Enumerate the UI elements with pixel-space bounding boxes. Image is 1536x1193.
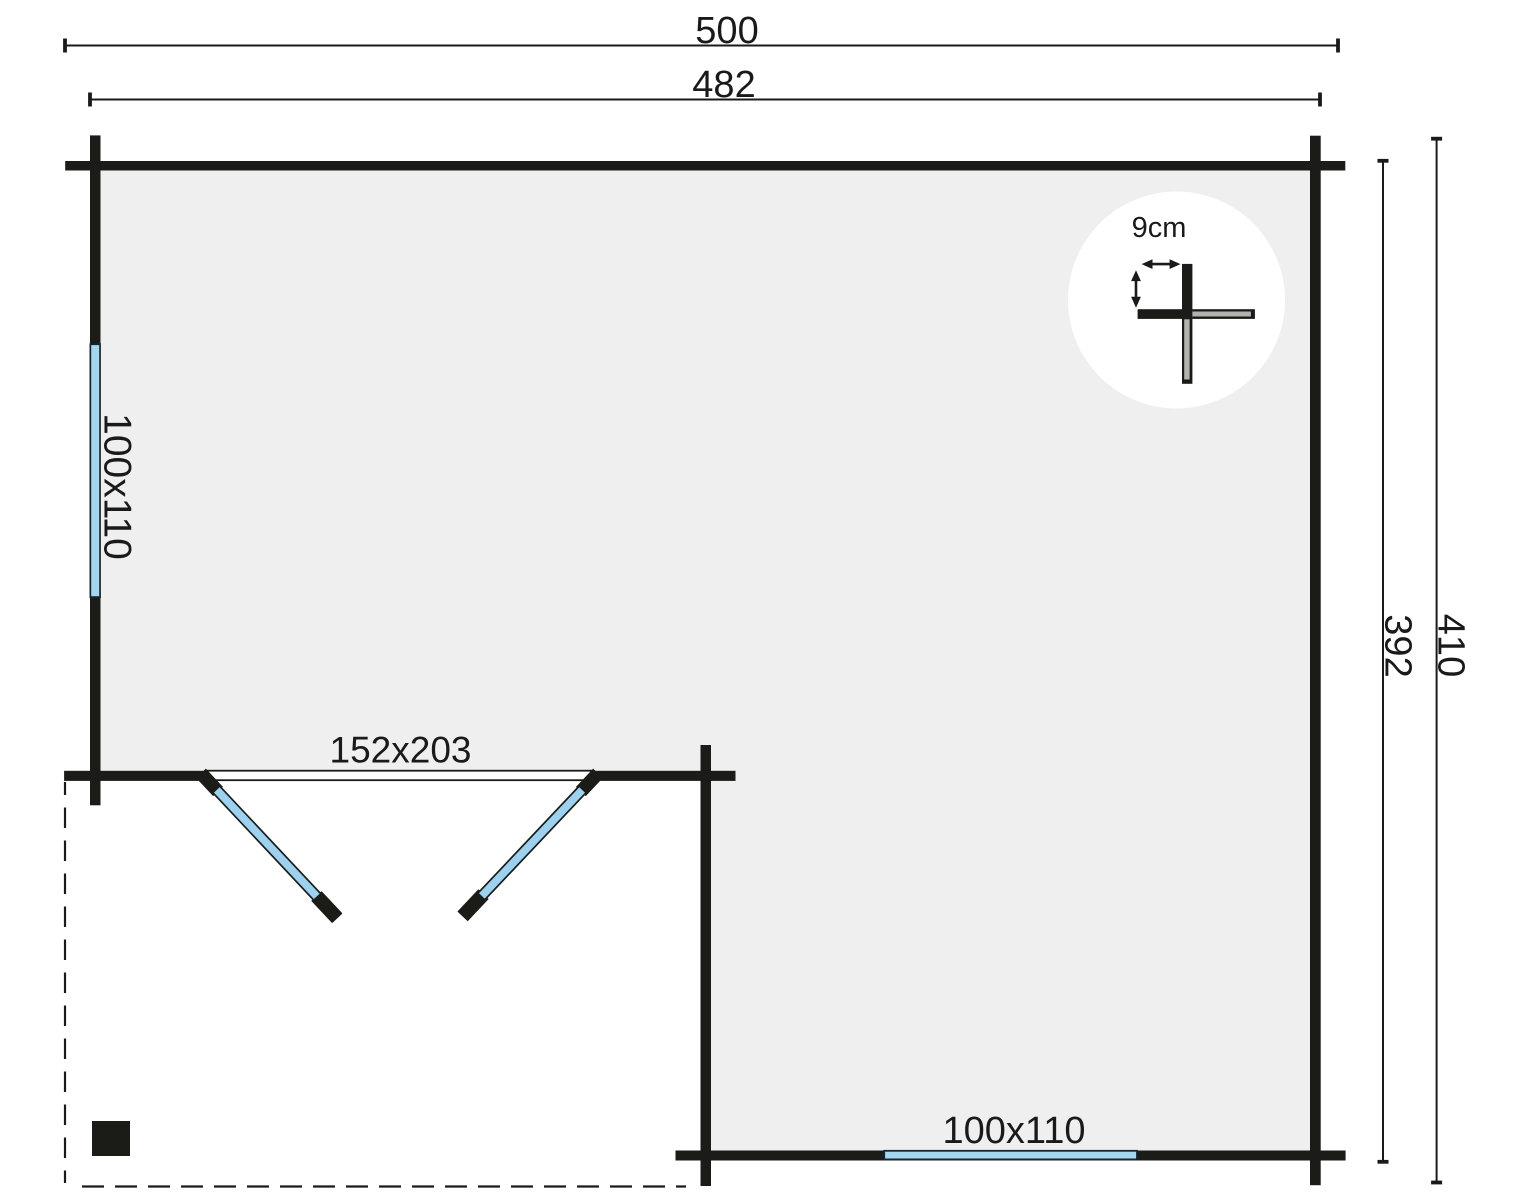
svg-text:482: 482 [692, 64, 755, 106]
svg-text:410: 410 [1430, 614, 1472, 677]
svg-text:9cm: 9cm [1132, 212, 1187, 244]
svg-text:100x110: 100x110 [943, 1110, 1086, 1152]
svg-text:500: 500 [695, 10, 758, 52]
svg-text:152x203: 152x203 [330, 730, 472, 771]
svg-text:392: 392 [1377, 614, 1419, 677]
svg-text:100x110: 100x110 [96, 413, 139, 560]
